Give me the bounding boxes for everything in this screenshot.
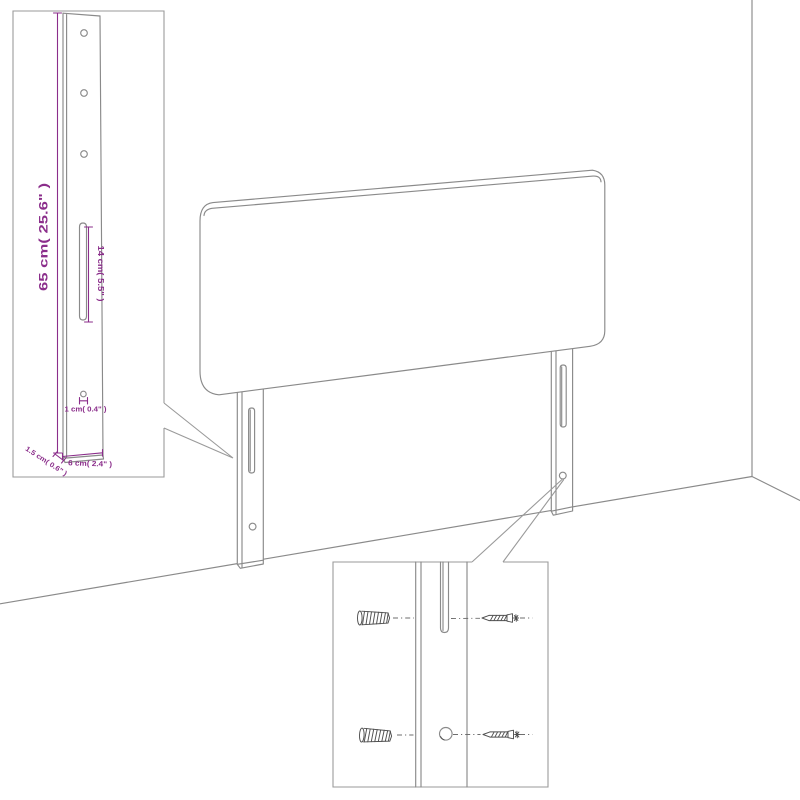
wall-anchor-icon <box>358 611 390 625</box>
dim-thickness-label: 1.5 cm( 0.6" ) <box>24 446 68 478</box>
alignment-dash-line <box>397 735 533 736</box>
dim-hole-label: 1 cm( 0.4" ) <box>65 405 108 414</box>
bracket-detail-inset: 65 cm( 25.6" ) 14 cm( 5.5" ) 1 cm( 0.4" … <box>13 11 164 478</box>
floor-line-left <box>0 477 752 604</box>
hardware-row-bottom <box>359 728 532 743</box>
dim-slot-label: 14 cm( 5.5" ) <box>96 246 106 302</box>
mounting-callout-lines <box>472 480 564 563</box>
bracket-hole <box>81 90 88 97</box>
bracket-callout-lines <box>164 403 233 458</box>
dim-width-label: 6 cm( 2.4" ) <box>68 458 113 469</box>
screw-icon <box>482 614 519 623</box>
bracket-drawing <box>63 13 104 462</box>
bracket-small-hole <box>81 391 87 397</box>
dim-height-label: 65 cm( 25.6" ) <box>37 183 51 291</box>
floor-line-right <box>752 477 800 501</box>
bracket-hole <box>81 30 88 37</box>
mounting-detail-inset <box>333 562 548 787</box>
alignment-dash-line <box>393 618 533 619</box>
leg-strip-drawing <box>416 562 467 787</box>
right-leg <box>551 341 572 515</box>
hardware-row-top <box>358 611 533 625</box>
wall-anchor-icon <box>359 728 392 743</box>
strip-slot <box>441 562 449 633</box>
bracket-slot <box>80 223 87 320</box>
left-leg <box>237 384 263 568</box>
headboard-panel <box>200 170 605 395</box>
bracket-dimensions: 65 cm( 25.6" ) 14 cm( 5.5" ) 1 cm( 0.4" … <box>24 13 113 478</box>
assembly-diagram: 65 cm( 25.6" ) 14 cm( 5.5" ) 1 cm( 0.4" … <box>0 0 800 800</box>
bracket-hole <box>81 151 88 158</box>
screw-icon <box>483 730 520 739</box>
